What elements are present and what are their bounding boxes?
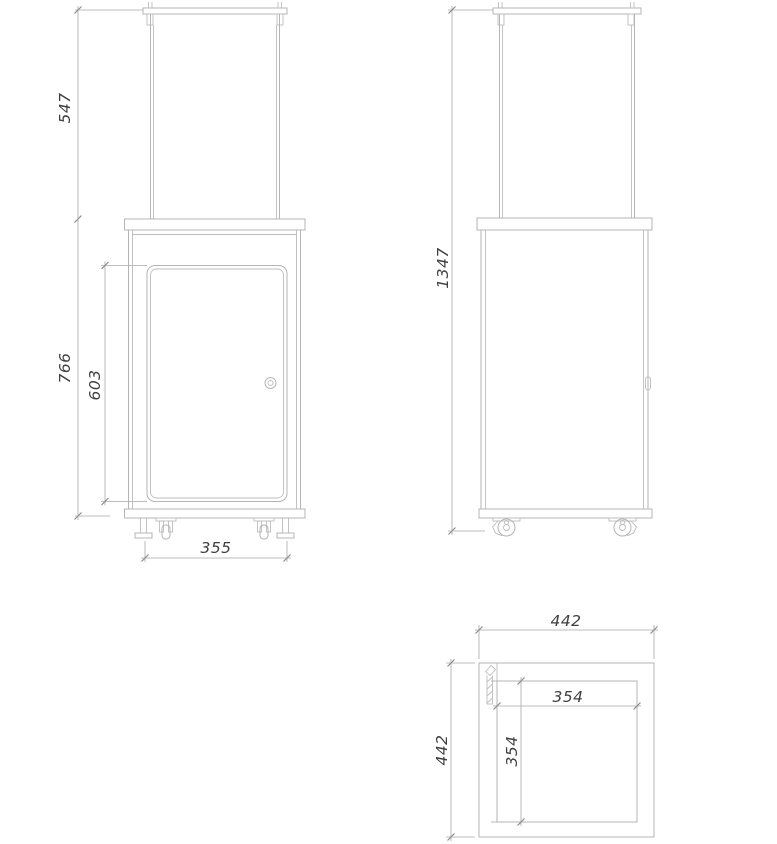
- front-top-plate: [143, 8, 287, 14]
- side-cabinet-body: [481, 230, 648, 509]
- caster-wheel: [614, 519, 631, 536]
- dim-bottom-overall-width: 442: [475, 612, 658, 659]
- front-base-plate: [125, 509, 306, 518]
- side-ledge: [477, 218, 652, 230]
- dim-label-inner-depth: 354: [503, 735, 521, 766]
- front-leveler-foot-right: [277, 518, 294, 538]
- front-top-cap: [143, 2, 287, 25]
- front-view: 547 766 603 355: [56, 2, 305, 562]
- side-base-plate: [479, 509, 652, 518]
- front-caster-right: [254, 518, 274, 539]
- dim-label-inner-width: 354: [552, 688, 583, 706]
- side-view: 1347: [434, 2, 652, 536]
- patio-heater-drawing: 547 766 603 355: [0, 0, 777, 844]
- caster-hub: [504, 525, 510, 531]
- side-top-cap: [493, 2, 641, 25]
- front-leveler-foot-left: [135, 518, 152, 538]
- dim-label-glass-height: 547: [56, 92, 74, 123]
- dim-label-overall-width: 442: [550, 612, 581, 630]
- door-lock-inner: [268, 381, 273, 386]
- caster-wheel: [498, 519, 515, 536]
- dim-front-glass-height: 547: [56, 6, 143, 223]
- front-caster-left: [156, 518, 176, 539]
- dim-side-overall-height: 1347: [434, 6, 493, 535]
- dim-label-door-height: 603: [86, 369, 104, 400]
- side-caster-right: [609, 518, 637, 536]
- technical-drawing-page: 547 766 603 355: [0, 0, 777, 844]
- front-door-handle: [265, 378, 276, 389]
- side-caster-left: [493, 518, 521, 536]
- bottom-hinge-detail: [486, 666, 496, 705]
- dim-label-overall-height: 1347: [434, 247, 452, 288]
- dim-label-overall-depth: 442: [433, 734, 451, 765]
- dim-bottom-inner-width: 354: [493, 688, 641, 710]
- bottom-view: 442 442 354 354: [433, 612, 658, 841]
- dim-front-door-height: 603: [86, 262, 147, 506]
- side-top-plate: [493, 8, 641, 14]
- front-ledge: [125, 219, 306, 230]
- front-glass-panel: [151, 14, 280, 219]
- dim-label-feet-spacing: 355: [200, 539, 231, 557]
- dim-front-feet-spacing: 355: [141, 539, 291, 562]
- side-top-tab-right: [628, 14, 634, 25]
- dim-label-cabinet-height: 766: [56, 352, 74, 383]
- caster-hub: [620, 525, 626, 531]
- door-lock-outer: [265, 378, 276, 389]
- front-cabinet-body: [129, 230, 301, 509]
- front-door: [147, 266, 287, 502]
- dim-bottom-inner-depth: 354: [491, 677, 525, 826]
- dim-bottom-overall-depth: 442: [433, 659, 475, 841]
- side-top-tab-left: [498, 14, 504, 25]
- side-glass-panel: [500, 14, 635, 218]
